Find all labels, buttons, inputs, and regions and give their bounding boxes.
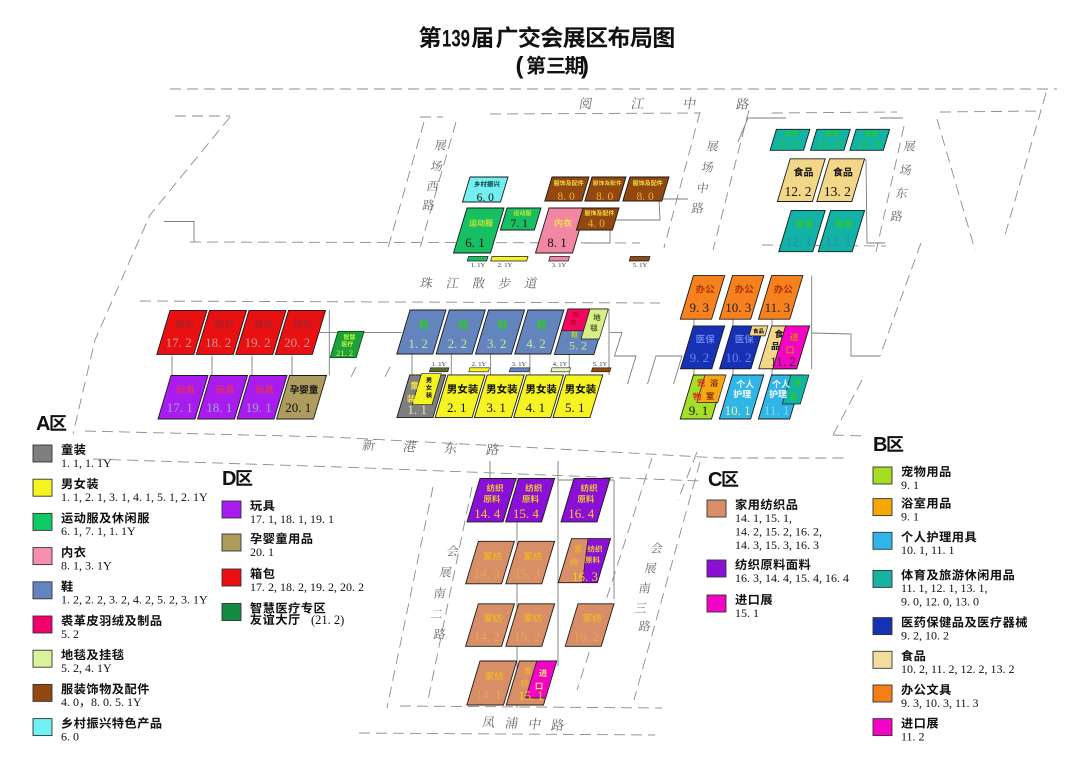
svg-text:10. 1: 10. 1 <box>725 403 751 418</box>
svg-text:4. 0，8. 0. 5. 1Y: 4. 0，8. 0. 5. 1Y <box>61 695 142 709</box>
svg-text:20. 1: 20. 1 <box>285 400 311 415</box>
svg-text:1. 1Y: 1. 1Y <box>471 262 486 269</box>
svg-text:3. 1Y: 3. 1Y <box>552 262 567 269</box>
svg-text:11. 1, 12. 1, 13. 1,: 11. 1, 12. 1, 13. 1, <box>901 581 988 595</box>
svg-text:): ) <box>581 53 589 80</box>
svg-text:B: B <box>873 434 887 456</box>
svg-text:139: 139 <box>442 25 470 52</box>
svg-text:C: C <box>708 469 722 491</box>
svg-text:5. 2: 5. 2 <box>569 339 587 353</box>
svg-text:16. 3: 16. 3 <box>572 569 598 584</box>
svg-text:13. 1: 13. 1 <box>825 234 851 249</box>
svg-text:9. 2: 9. 2 <box>690 350 710 365</box>
svg-text:A: A <box>36 413 50 435</box>
svg-text:10. 3: 10. 3 <box>725 300 751 315</box>
svg-text:5. 1Y: 5. 1Y <box>633 262 648 269</box>
svg-text:17. 1, 18. 1, 19. 1: 17. 1, 18. 1, 19. 1 <box>250 512 334 526</box>
svg-text:14. 1: 14. 1 <box>476 687 502 702</box>
svg-text:11. 2: 11. 2 <box>901 729 925 743</box>
svg-text:1. 1: 1. 1 <box>407 402 427 417</box>
svg-text:14. 3: 14. 3 <box>474 566 500 581</box>
svg-text:11. 2: 11. 2 <box>770 354 796 369</box>
svg-text:6. 0: 6. 0 <box>61 729 79 743</box>
svg-text:14. 3, 15. 3, 16. 3: 14. 3, 15. 3, 16. 3 <box>735 538 819 552</box>
svg-text:13. 0: 13. 0 <box>856 137 880 151</box>
svg-text:12. 1: 12. 1 <box>786 234 812 249</box>
svg-text:11. 1: 11. 1 <box>764 403 790 418</box>
svg-text:3. 1Y: 3. 1Y <box>512 361 527 368</box>
svg-text:2. 1: 2. 1 <box>447 400 467 415</box>
svg-text:12. 2: 12. 2 <box>785 184 812 199</box>
svg-text:14. 2, 15. 2, 16. 2,: 14. 2, 15. 2, 16. 2, <box>735 524 822 538</box>
svg-text:20. 1: 20. 1 <box>250 545 274 559</box>
svg-text:19. 2: 19. 2 <box>245 335 271 350</box>
svg-text:8. 0: 8. 0 <box>596 191 614 203</box>
svg-text:15. 1: 15. 1 <box>519 689 544 703</box>
svg-text:15. 4: 15. 4 <box>513 506 540 521</box>
svg-text:14. 4: 14. 4 <box>474 506 501 521</box>
svg-text:3. 2: 3. 2 <box>487 336 507 351</box>
svg-text:5. 2: 5. 2 <box>61 627 79 641</box>
svg-text:8. 0: 8. 0 <box>637 191 655 203</box>
svg-text:9. 3, 10. 3, 11. 3: 9. 3, 10. 3, 11. 3 <box>901 696 979 710</box>
svg-text:7. 1: 7. 1 <box>511 218 529 230</box>
svg-text:6. 1, 7. 1, 1. 1Y: 6. 1, 7. 1, 1. 1Y <box>61 524 136 538</box>
svg-text:15. 2: 15. 2 <box>514 629 540 644</box>
svg-text:9. 3: 9. 3 <box>689 300 709 315</box>
svg-text:12. 0: 12. 0 <box>817 137 841 151</box>
svg-text:(: ( <box>516 53 524 80</box>
svg-text:16. 3, 14. 4, 15. 4, 16. 4: 16. 3, 14. 4, 15. 4, 16. 4 <box>735 571 849 585</box>
svg-text:9. 1: 9. 1 <box>689 403 709 418</box>
svg-text:1. 1, 2. 1, 3. 1, 4. 1, 5. 1,: 1. 1, 2. 1, 3. 1, 4. 1, 5. 1, 2. 1Y <box>61 490 208 504</box>
svg-text:16. 2: 16. 2 <box>573 629 599 644</box>
svg-text:4. 1Y: 4. 1Y <box>553 361 568 368</box>
svg-text:3. 1: 3. 1 <box>486 400 506 415</box>
svg-text:20. 2: 20. 2 <box>284 335 310 350</box>
svg-text:5. 1Y: 5. 1Y <box>593 361 608 368</box>
svg-text:19. 1: 19. 1 <box>246 400 272 415</box>
svg-text:5. 1: 5. 1 <box>565 400 585 415</box>
svg-text:10. 2, 11. 2, 12. 2, 13. 2: 10. 2, 11. 2, 12. 2, 13. 2 <box>901 662 1015 676</box>
svg-text:21. 2: 21. 2 <box>336 348 353 358</box>
svg-text:8. 1, 3. 1Y: 8. 1, 3. 1Y <box>61 558 112 572</box>
svg-text:14. 2: 14. 2 <box>474 629 500 644</box>
svg-text:(21. 2): (21. 2) <box>311 613 344 627</box>
svg-text:10. 1, 11. 1: 10. 1, 11. 1 <box>901 543 955 557</box>
svg-text:15. 3: 15. 3 <box>514 566 540 581</box>
svg-text:11. 3: 11. 3 <box>765 300 791 315</box>
svg-text:8. 1: 8. 1 <box>547 235 567 250</box>
svg-text:10. 2: 10. 2 <box>726 350 752 365</box>
svg-text:18. 2: 18. 2 <box>205 335 231 350</box>
svg-text:17. 1: 17. 1 <box>167 400 193 415</box>
svg-text:9. 1: 9. 1 <box>901 509 919 523</box>
svg-text:D: D <box>222 468 236 490</box>
svg-text:8. 0: 8. 0 <box>558 191 576 203</box>
svg-text:2. 1Y: 2. 1Y <box>498 262 513 269</box>
svg-text:1. 2, 2. 2, 3. 2, 4. 2, 5. 2,: 1. 2, 2. 2, 3. 2, 4. 2, 5. 2, 3. 1Y <box>61 593 208 607</box>
svg-text:5. 2, 4. 1Y: 5. 2, 4. 1Y <box>61 661 112 675</box>
svg-text:4. 1: 4. 1 <box>526 400 546 415</box>
svg-text:6. 1: 6. 1 <box>465 235 485 250</box>
svg-text:14. 1, 15. 1,: 14. 1, 15. 1, <box>735 511 792 525</box>
svg-text:1. 1Y: 1. 1Y <box>432 361 447 368</box>
svg-text:4. 2: 4. 2 <box>526 336 546 351</box>
svg-text:1. 2: 1. 2 <box>408 336 428 351</box>
svg-text:9. 0, 12. 0, 13. 0: 9. 0, 12. 0, 13. 0 <box>901 595 979 609</box>
svg-text:16. 4: 16. 4 <box>568 506 595 521</box>
svg-text:18. 1: 18. 1 <box>206 400 232 415</box>
svg-text:2. 1Y: 2. 1Y <box>472 361 487 368</box>
svg-text:1. 1, 1. 1Y: 1. 1, 1. 1Y <box>61 456 112 470</box>
svg-text:13. 2: 13. 2 <box>824 184 851 199</box>
svg-text:2. 2: 2. 2 <box>448 336 468 351</box>
svg-text:15. 1: 15. 1 <box>735 606 759 620</box>
svg-text:9. 1: 9. 1 <box>901 478 919 492</box>
svg-text:4. 0: 4. 0 <box>588 218 606 230</box>
svg-text:6. 0: 6. 0 <box>477 192 495 204</box>
svg-text:17. 2, 18. 2, 19. 2, 20. 2: 17. 2, 18. 2, 19. 2, 20. 2 <box>250 580 364 594</box>
svg-text:9. 2, 10. 2: 9. 2, 10. 2 <box>901 628 949 642</box>
svg-text:17. 2: 17. 2 <box>166 335 192 350</box>
svg-text:9. 0: 9. 0 <box>780 137 798 151</box>
